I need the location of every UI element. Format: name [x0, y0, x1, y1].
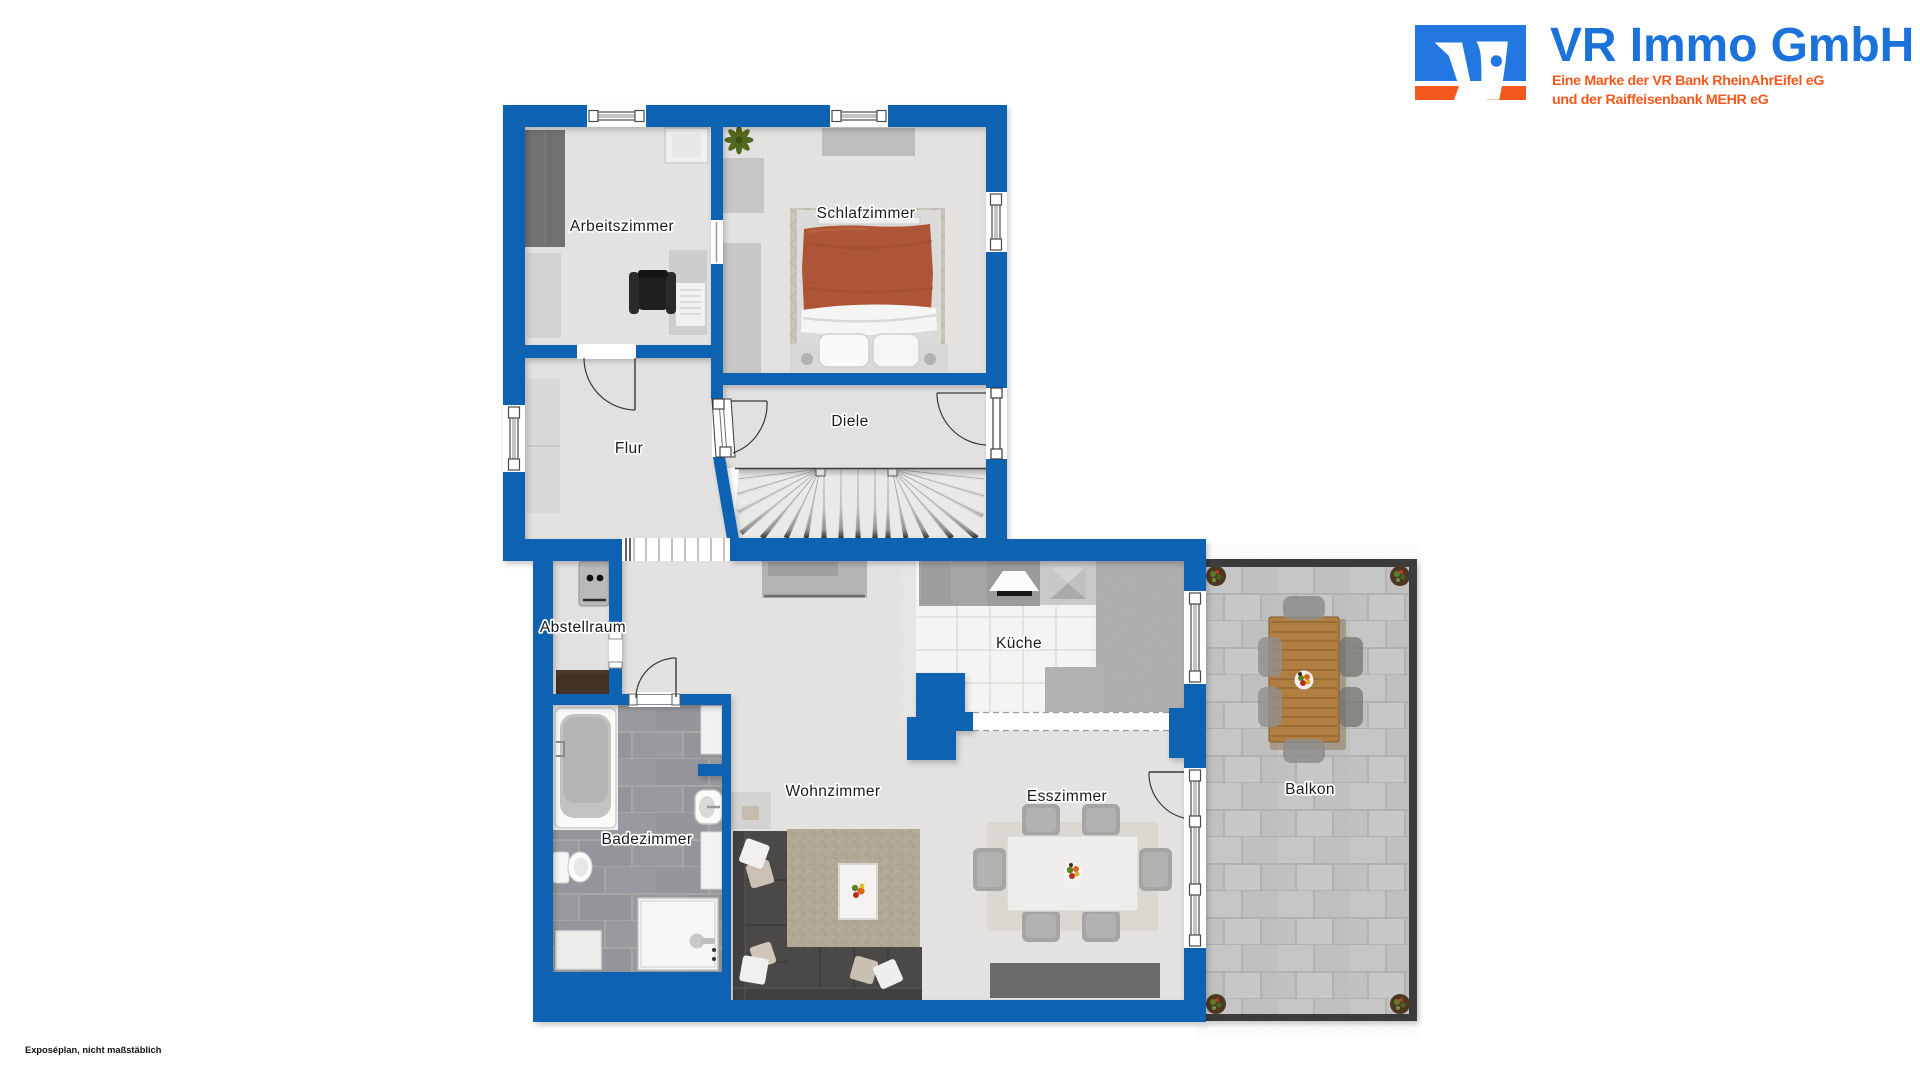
- svg-text:und der Raiffeisenbank MEHR eG: und der Raiffeisenbank MEHR eG: [1552, 92, 1769, 108]
- svg-text:Esszimmer: Esszimmer: [1027, 788, 1107, 805]
- svg-text:Küche: Küche: [996, 635, 1042, 652]
- svg-text:Abstellraum: Abstellraum: [540, 619, 626, 636]
- svg-text:VR Immo GmbH: VR Immo GmbH: [1550, 19, 1914, 72]
- svg-text:Badezimmer: Badezimmer: [602, 831, 693, 848]
- svg-text:Eine Marke der VR Bank RheinAh: Eine Marke der VR Bank RheinAhrEifel eG: [1552, 73, 1824, 89]
- svg-text:Arbeitszimmer: Arbeitszimmer: [570, 218, 674, 235]
- svg-text:Schlafzimmer: Schlafzimmer: [817, 205, 916, 222]
- svg-text:Exposéplan, nicht maßstäblich: Exposéplan, nicht maßstäblich: [25, 1045, 162, 1055]
- svg-text:Flur: Flur: [615, 440, 643, 457]
- svg-text:Diele: Diele: [831, 413, 868, 430]
- svg-text:Balkon: Balkon: [1285, 781, 1335, 798]
- svg-text:Wohnzimmer: Wohnzimmer: [785, 783, 880, 800]
